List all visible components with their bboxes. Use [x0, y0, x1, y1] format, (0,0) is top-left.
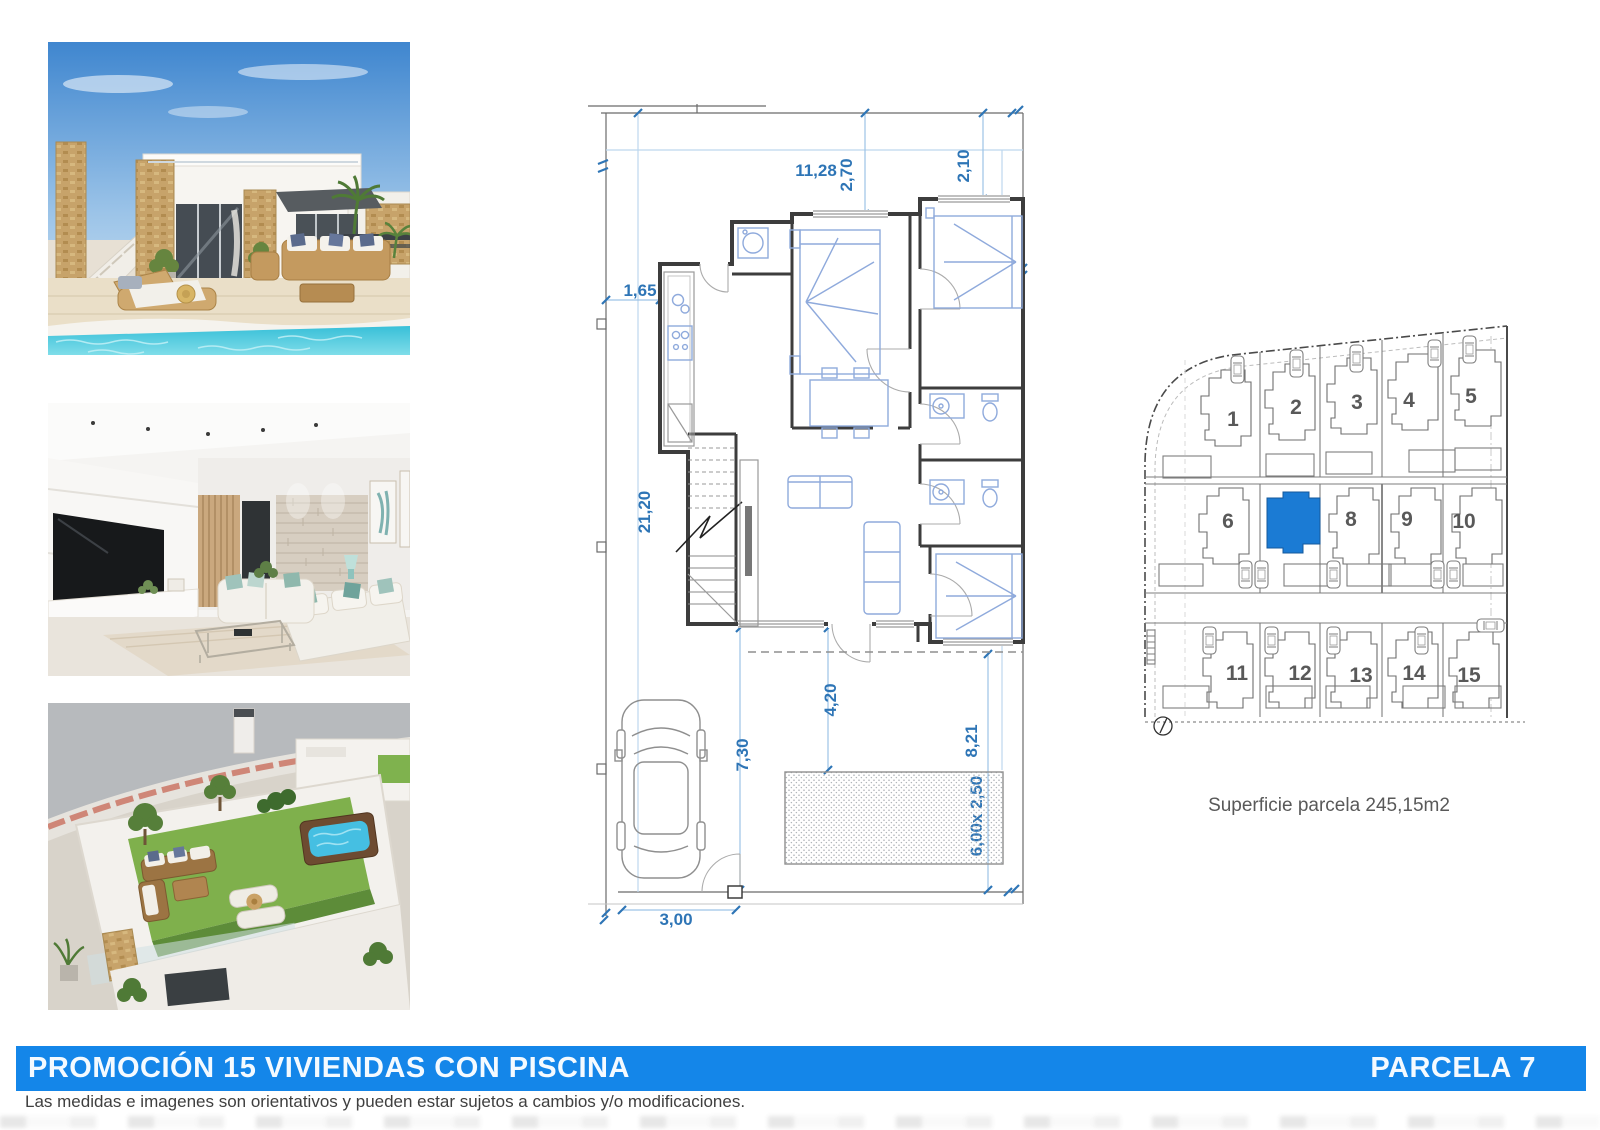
parcel-label-6: 6: [1222, 510, 1234, 533]
parcel-label-9: 9: [1401, 508, 1413, 531]
dim-offset-left: 1,65: [623, 281, 656, 300]
disclaimer-text: Las medidas e imagenes son orientativos …: [25, 1092, 745, 1112]
villa-exterior-illustration: [48, 42, 410, 355]
parcel-label-5: 5: [1465, 385, 1477, 408]
living-room-illustration: [48, 403, 410, 676]
site-plan-drawing: 1 2 3 4 5 6 8 9 10 11 12 13 14 15: [1133, 312, 1525, 744]
site-plan: 1 2 3 4 5 6 8 9 10 11 12 13 14 15: [1133, 312, 1525, 744]
parcel-label-15: 15: [1457, 664, 1481, 687]
parcel-label-10: 10: [1452, 510, 1475, 533]
dim-depth-left: 21,20: [635, 491, 654, 534]
site-plan-caption: Superficie parcela 245,15m2: [1133, 795, 1525, 817]
parcel-label-12: 12: [1288, 662, 1311, 685]
dim-gate-width: 3,00: [659, 910, 692, 929]
parcel-label-3: 3: [1351, 391, 1363, 414]
car-icon: [615, 700, 707, 878]
pool: [785, 772, 1003, 864]
dim-offset-top-right: 2,10: [954, 149, 973, 182]
parcel-label-11: 11: [1226, 662, 1249, 685]
stair-hatch: [1147, 630, 1155, 664]
photo-rooftop-terrace: [48, 703, 410, 1010]
photo-villa-exterior: [48, 42, 410, 355]
dim-front-right: 8,21: [962, 724, 981, 757]
floor-plan-drawing: 11,28 2,70 2,10 1,65 21,20 7,30 4,20 8,2…: [588, 104, 1028, 938]
dim-front-left: 7,30: [733, 738, 752, 771]
parcel-label-4: 4: [1403, 389, 1415, 412]
bottom-cropped-strip: [0, 1116, 1600, 1128]
dim-front-mid: 4,20: [821, 683, 840, 716]
dim-width-top: 11,28: [795, 161, 837, 180]
north-arrow-icon: [1154, 717, 1172, 735]
promo-title: PROMOCIÓN 15 VIVIENDAS CON PISCINA: [28, 1052, 630, 1085]
parcel-label-13: 13: [1349, 664, 1372, 687]
parcel-label-14: 14: [1402, 662, 1426, 685]
rooftop-illustration: [48, 703, 410, 1010]
parcel-7-highlight: [1267, 492, 1320, 553]
parcel-label-2: 2: [1290, 396, 1302, 419]
floor-plan: 11,28 2,70 2,10 1,65 21,20 7,30 4,20 8,2…: [588, 104, 1028, 938]
parcel-label-1: 1: [1227, 408, 1239, 431]
street-lines: [1145, 477, 1507, 623]
dim-offset-top-mid: 2,70: [837, 158, 856, 191]
parcel-label-8: 8: [1345, 508, 1357, 531]
parcel-badge: PARCELA 7: [1370, 1052, 1536, 1085]
promo-banner: PROMOCIÓN 15 VIVIENDAS CON PISCINA PARCE…: [16, 1046, 1586, 1091]
brochure-page: 11,28 2,70 2,10 1,65 21,20 7,30 4,20 8,2…: [0, 0, 1600, 1130]
photo-living-room: [48, 403, 410, 676]
